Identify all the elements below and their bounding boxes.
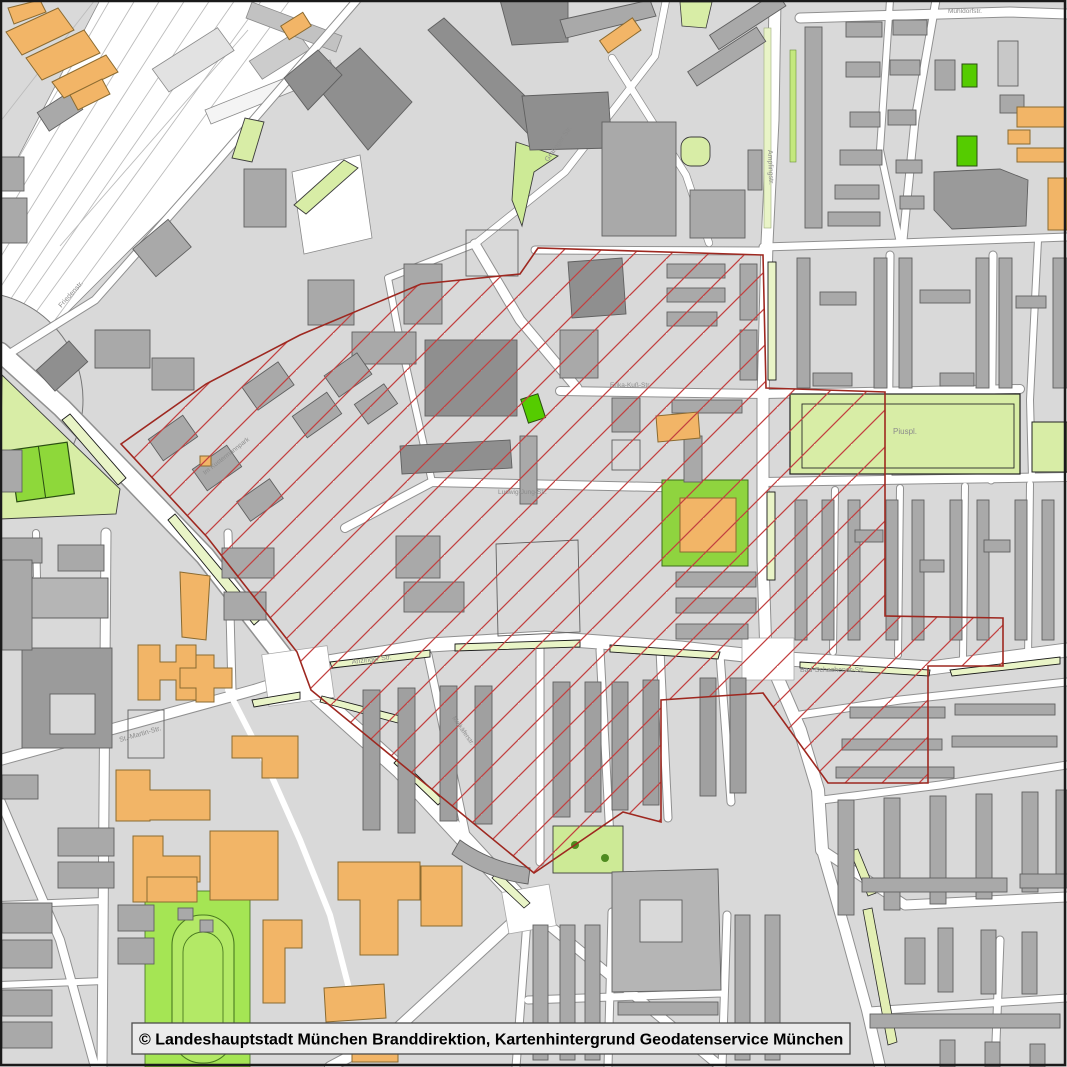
svg-text:Bad-Schachener-Str.: Bad-Schachener-Str. bbox=[800, 667, 865, 674]
svg-text:Erika-Kuß-Str.: Erika-Kuß-Str. bbox=[610, 382, 651, 389]
svg-text:Ludwig-Jung-Str.: Ludwig-Jung-Str. bbox=[498, 489, 547, 496]
svg-text:Ampfingstr.: Ampfingstr. bbox=[766, 150, 774, 185]
svg-text:© Landeshauptstadt München Bra: © Landeshauptstadt München Branddirektio… bbox=[139, 1032, 843, 1049]
svg-text:Piuspl.: Piuspl. bbox=[893, 427, 917, 436]
svg-text:Mühldorfstr.: Mühldorfstr. bbox=[948, 8, 982, 15]
